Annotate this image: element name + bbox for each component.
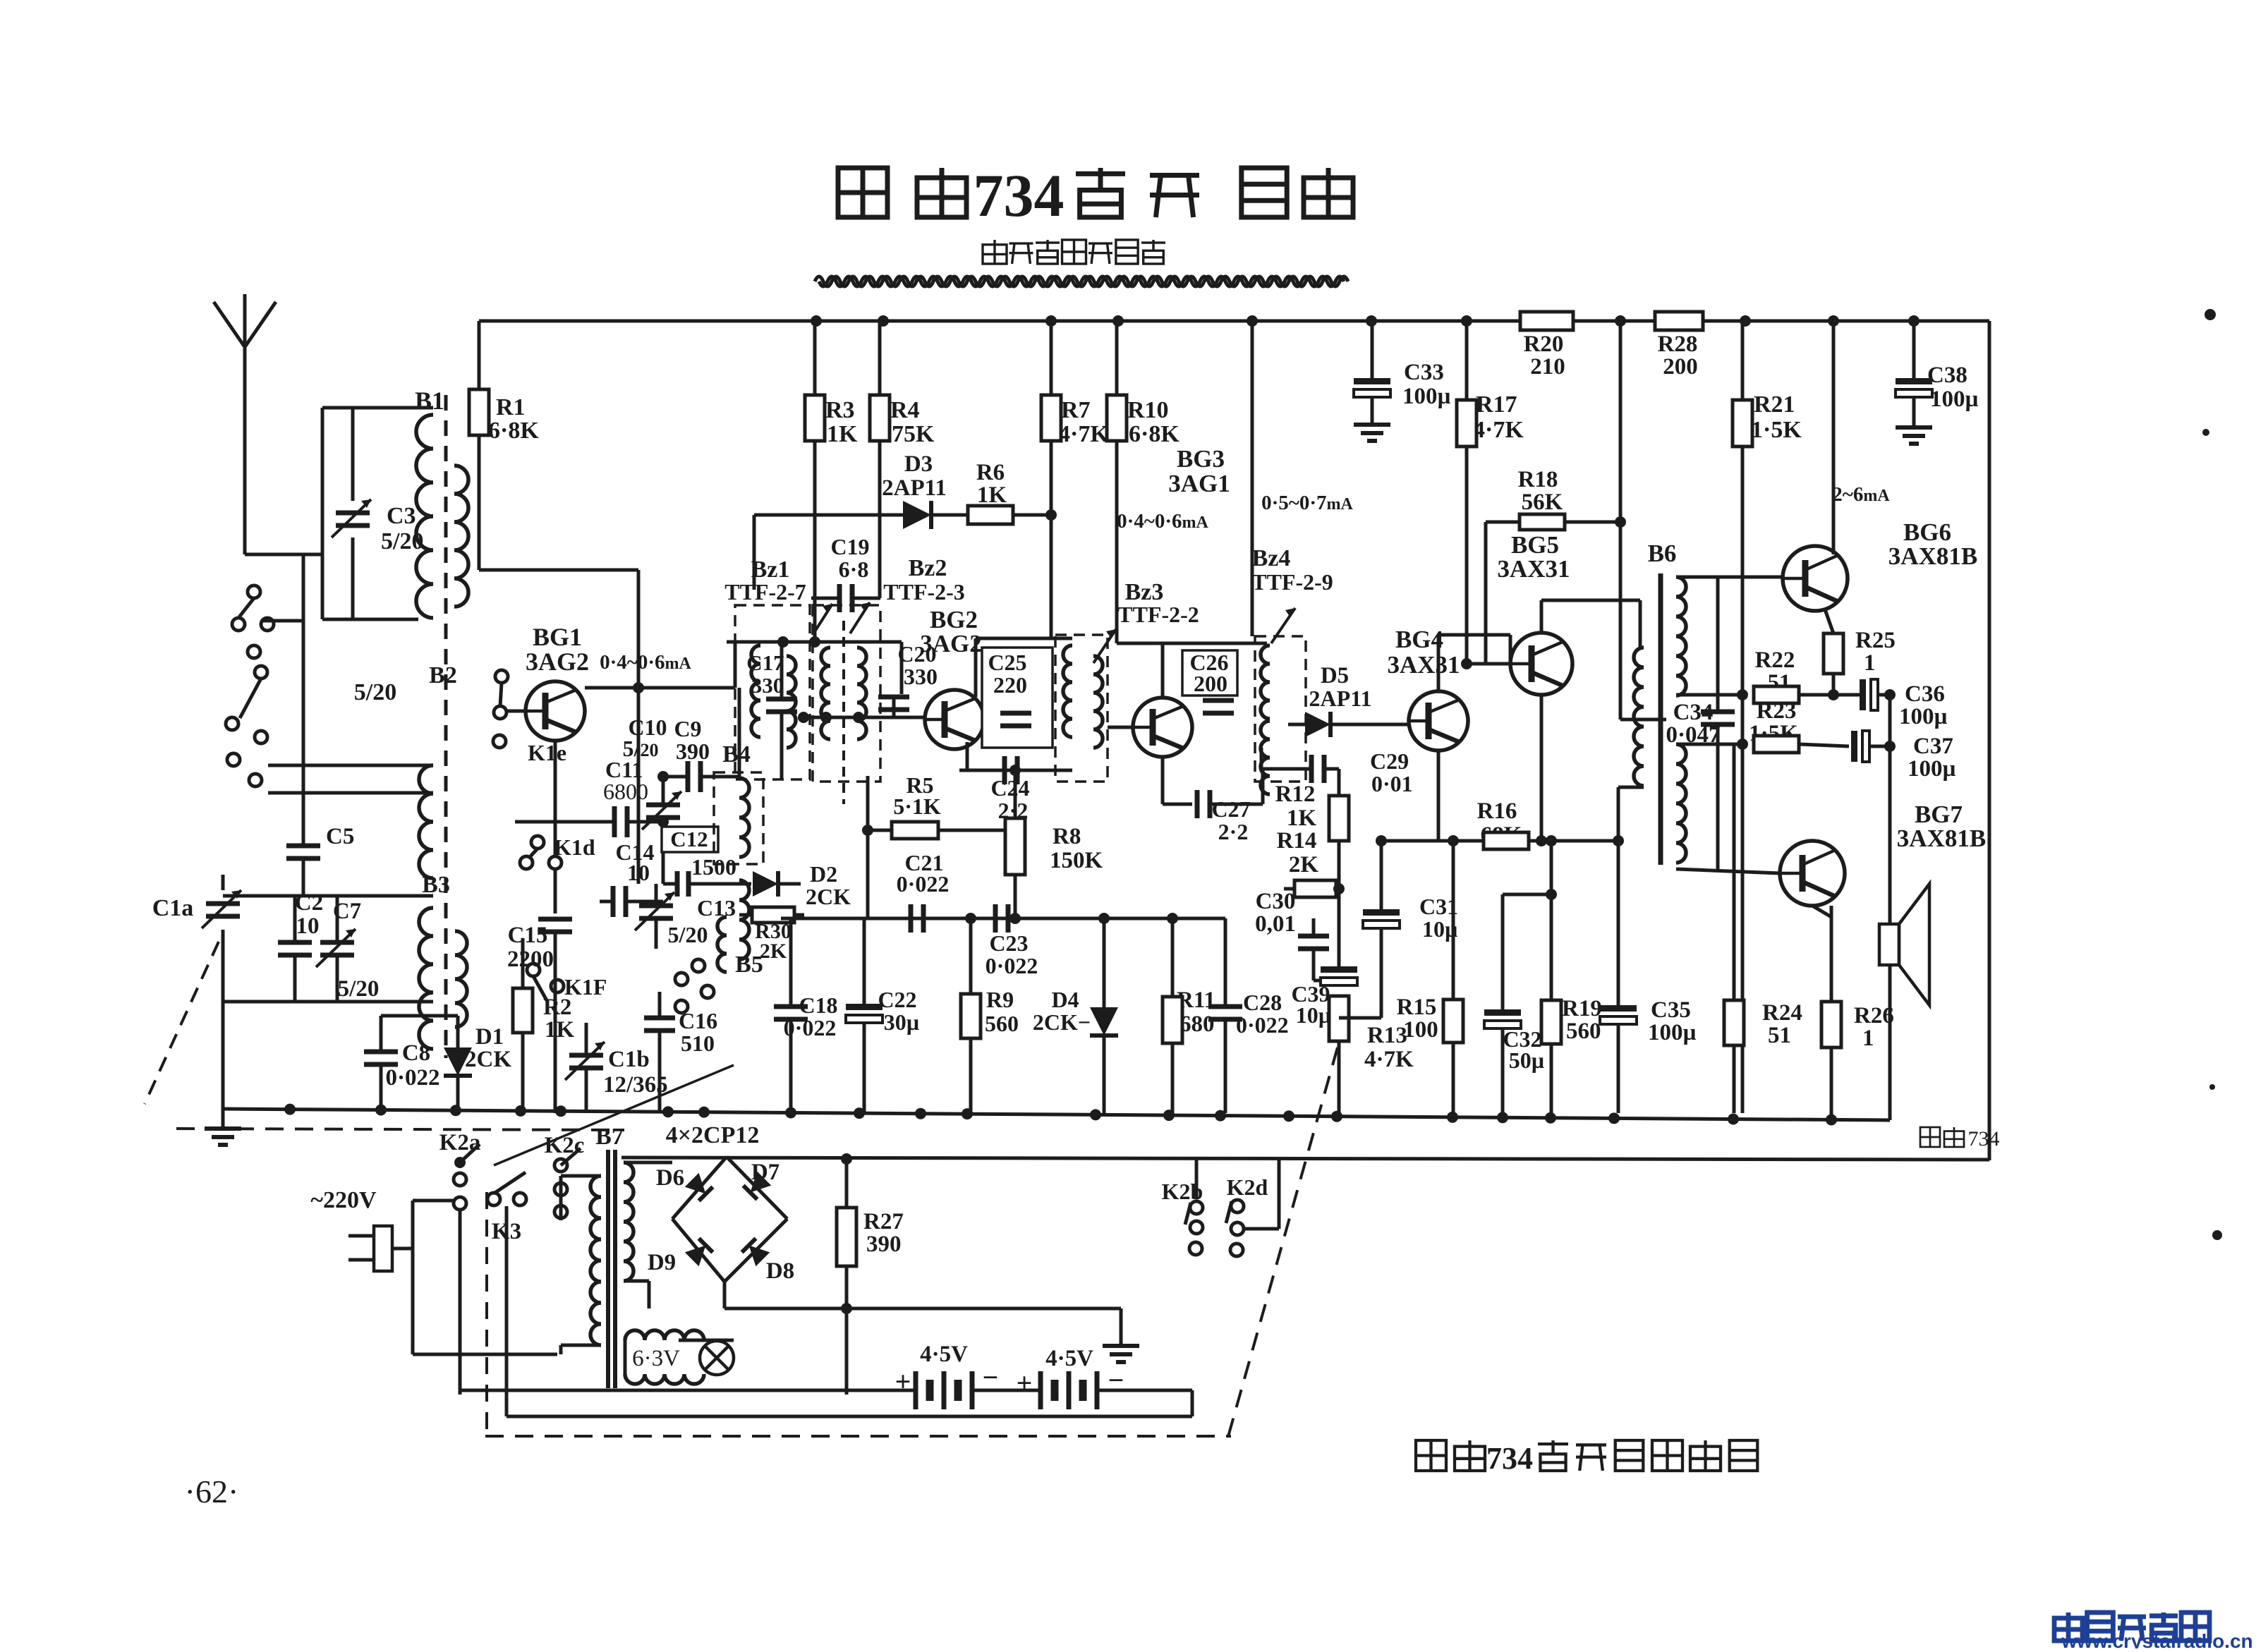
svg-text:B6: B6 bbox=[1648, 540, 1677, 567]
svg-text:3AX81B: 3AX81B bbox=[1888, 542, 1977, 570]
svg-text:220: 220 bbox=[993, 672, 1027, 698]
svg-text:10: 10 bbox=[296, 913, 320, 939]
svg-text:+: + bbox=[895, 1366, 911, 1397]
svg-text:5/20: 5/20 bbox=[668, 922, 708, 947]
svg-text:75K: 75K bbox=[892, 421, 935, 447]
svg-text:R9: R9 bbox=[986, 987, 1014, 1012]
svg-text:C29: C29 bbox=[1370, 748, 1409, 774]
svg-text:0·022: 0·022 bbox=[385, 1065, 439, 1091]
svg-text:C23: C23 bbox=[989, 930, 1028, 956]
svg-text:2CK: 2CK bbox=[806, 884, 851, 909]
svg-text:B1: B1 bbox=[415, 387, 444, 415]
svg-text:R6: R6 bbox=[976, 460, 1005, 485]
svg-text:5·1K: 5·1K bbox=[893, 794, 941, 819]
svg-text:R22: R22 bbox=[1755, 648, 1795, 673]
svg-text:R25: R25 bbox=[1855, 628, 1896, 653]
svg-text:330: 330 bbox=[751, 673, 784, 698]
svg-text:R23: R23 bbox=[1757, 698, 1797, 724]
svg-text:1K: 1K bbox=[545, 1017, 575, 1043]
svg-text:C19: C19 bbox=[830, 534, 869, 559]
svg-text:K2a: K2a bbox=[439, 1130, 481, 1155]
svg-text:C27: C27 bbox=[1211, 796, 1250, 822]
svg-text:R15: R15 bbox=[1397, 995, 1437, 1020]
svg-text:0·022: 0·022 bbox=[1236, 1012, 1289, 1038]
svg-text:R10: R10 bbox=[1127, 397, 1169, 423]
svg-text:4·7K: 4·7K bbox=[1473, 417, 1524, 443]
svg-text:1K: 1K bbox=[827, 421, 858, 447]
svg-text:C36: C36 bbox=[1905, 681, 1945, 707]
svg-text:4×2CP12: 4×2CP12 bbox=[666, 1122, 760, 1148]
svg-text:150K: 150K bbox=[1050, 848, 1103, 873]
svg-text:51: 51 bbox=[1768, 1023, 1791, 1048]
svg-text:R20: R20 bbox=[1524, 332, 1564, 357]
svg-text:R26: R26 bbox=[1854, 1003, 1894, 1028]
svg-text:TTF-2-2: TTF-2-2 bbox=[1117, 602, 1199, 627]
svg-text:TTF-2-3: TTF-2-3 bbox=[883, 579, 965, 605]
svg-text:C8: C8 bbox=[402, 1040, 430, 1066]
svg-text:210: 210 bbox=[1530, 354, 1565, 379]
svg-text:0·022: 0·022 bbox=[897, 871, 950, 897]
svg-text:R16: R16 bbox=[1477, 798, 1517, 824]
svg-text:R17: R17 bbox=[1476, 391, 1517, 418]
svg-text:C35: C35 bbox=[1651, 997, 1691, 1023]
svg-text:C12: C12 bbox=[670, 827, 708, 851]
svg-text:5/20: 5/20 bbox=[354, 679, 396, 705]
svg-text:2200: 2200 bbox=[507, 947, 554, 972]
svg-text:4·5V: 4·5V bbox=[920, 1342, 968, 1367]
svg-text:734: 734 bbox=[974, 162, 1065, 229]
svg-text:C24: C24 bbox=[990, 775, 1029, 801]
svg-text:1500: 1500 bbox=[691, 854, 736, 880]
svg-text:C22: C22 bbox=[878, 987, 916, 1012]
svg-text:BG1: BG1 bbox=[533, 623, 582, 651]
svg-text:2CK−: 2CK− bbox=[1033, 1009, 1091, 1035]
svg-text:3AX81B: 3AX81B bbox=[1897, 825, 1986, 852]
svg-text:K2c: K2c bbox=[545, 1133, 585, 1158]
svg-text:0·4~0·6mA: 0·4~0·6mA bbox=[1117, 510, 1208, 533]
svg-text:www.crystalradio.cn: www.crystalradio.cn bbox=[2061, 1630, 2252, 1648]
svg-text:2AP11: 2AP11 bbox=[882, 475, 947, 501]
svg-text:R14: R14 bbox=[1277, 828, 1317, 854]
svg-text:C30: C30 bbox=[1256, 889, 1296, 914]
svg-text:10: 10 bbox=[627, 860, 650, 885]
svg-text:Bz4: Bz4 bbox=[1252, 545, 1291, 571]
svg-text:R27: R27 bbox=[863, 1209, 904, 1234]
svg-text:3AG2: 3AG2 bbox=[526, 648, 589, 676]
svg-text:C9: C9 bbox=[674, 716, 701, 741]
svg-text:D5: D5 bbox=[1321, 663, 1349, 688]
svg-text:B2: B2 bbox=[429, 662, 457, 688]
svg-text:D7: D7 bbox=[751, 1160, 780, 1185]
svg-text:D3: D3 bbox=[904, 451, 933, 477]
svg-text:C1a: C1a bbox=[152, 895, 194, 921]
svg-text:B3: B3 bbox=[422, 872, 450, 898]
svg-text:BG3: BG3 bbox=[1177, 445, 1225, 473]
svg-text:2K: 2K bbox=[1289, 852, 1319, 877]
svg-text:R24: R24 bbox=[1762, 1000, 1802, 1026]
svg-text:50µ: 50µ bbox=[1509, 1047, 1544, 1073]
svg-text:4·5V: 4·5V bbox=[1045, 1346, 1093, 1371]
svg-text:K1d: K1d bbox=[554, 834, 595, 860]
svg-text:2CK: 2CK bbox=[465, 1047, 511, 1072]
svg-text:R28: R28 bbox=[1658, 332, 1698, 357]
svg-text:1: 1 bbox=[1864, 650, 1876, 676]
svg-text:3AG2: 3AG2 bbox=[920, 630, 982, 657]
svg-text:D1: D1 bbox=[475, 1024, 504, 1050]
svg-text:1: 1 bbox=[1862, 1026, 1874, 1051]
svg-text:+: + bbox=[1017, 1367, 1033, 1399]
svg-text:2~6mA: 2~6mA bbox=[1832, 483, 1890, 506]
svg-text:10µ: 10µ bbox=[1296, 1002, 1331, 1028]
svg-text:6·8K: 6·8K bbox=[1129, 421, 1180, 447]
svg-text:0·022: 0·022 bbox=[986, 953, 1038, 978]
svg-text:B4: B4 bbox=[722, 741, 751, 767]
svg-text:C1b: C1b bbox=[608, 1047, 650, 1072]
svg-text:C3: C3 bbox=[387, 503, 416, 529]
svg-text:56K: 56K bbox=[1522, 490, 1563, 515]
svg-text:·62·: ·62· bbox=[185, 1474, 239, 1510]
svg-text:734: 734 bbox=[1968, 1127, 2000, 1150]
svg-text:D6: D6 bbox=[656, 1165, 684, 1191]
svg-text:~220V: ~220V bbox=[310, 1187, 377, 1213]
svg-text:C38: C38 bbox=[1927, 363, 1967, 388]
svg-text:R13: R13 bbox=[1367, 1023, 1407, 1048]
svg-text:C33: C33 bbox=[1404, 360, 1444, 385]
svg-text:4·7K: 4·7K bbox=[1364, 1047, 1414, 1072]
svg-text:6·3V: 6·3V bbox=[632, 1346, 680, 1371]
svg-text:D8: D8 bbox=[766, 1258, 794, 1284]
svg-text:6·8: 6·8 bbox=[839, 557, 869, 582]
svg-text:K1F: K1F bbox=[564, 974, 607, 1000]
svg-text:3AG1: 3AG1 bbox=[1168, 470, 1230, 497]
svg-text:2AP11: 2AP11 bbox=[1309, 686, 1372, 711]
svg-text:6800: 6800 bbox=[603, 779, 648, 804]
svg-text:C17: C17 bbox=[746, 650, 784, 675]
svg-text:200: 200 bbox=[1194, 671, 1227, 696]
svg-text:C5: C5 bbox=[326, 824, 354, 849]
svg-text:1K: 1K bbox=[1287, 806, 1317, 831]
svg-text:2K: 2K bbox=[760, 940, 787, 963]
svg-text:C15: C15 bbox=[508, 923, 548, 948]
svg-text:R4: R4 bbox=[890, 397, 920, 423]
svg-text:D4: D4 bbox=[1051, 987, 1079, 1012]
svg-text:R8: R8 bbox=[1053, 824, 1081, 849]
svg-text:0·5~0·7mA: 0·5~0·7mA bbox=[1261, 492, 1353, 514]
svg-text:2·2: 2·2 bbox=[1218, 819, 1249, 844]
svg-text:5/20: 5/20 bbox=[338, 976, 380, 1002]
svg-text:C13: C13 bbox=[697, 895, 736, 921]
svg-text:560: 560 bbox=[985, 1011, 1019, 1036]
svg-text:0·4~0·6mA: 0·4~0·6mA bbox=[600, 651, 691, 674]
svg-text:3AX31: 3AX31 bbox=[1497, 555, 1570, 583]
svg-text:TTF-2-7: TTF-2-7 bbox=[724, 579, 806, 605]
svg-text:R21: R21 bbox=[1754, 391, 1795, 418]
svg-text:330: 330 bbox=[904, 664, 938, 689]
svg-text:1·5K: 1·5K bbox=[1751, 417, 1802, 443]
svg-text:100µ: 100µ bbox=[1899, 704, 1948, 729]
svg-text:R12: R12 bbox=[1275, 782, 1316, 807]
svg-text:560: 560 bbox=[1566, 1019, 1601, 1044]
svg-text:BG4: BG4 bbox=[1395, 626, 1443, 653]
svg-text:100: 100 bbox=[1403, 1017, 1438, 1043]
svg-text:R18: R18 bbox=[1518, 467, 1558, 492]
svg-text:TTF-2-9: TTF-2-9 bbox=[1251, 569, 1333, 595]
svg-text:100µ: 100µ bbox=[1648, 1020, 1697, 1045]
svg-text:100µ: 100µ bbox=[1908, 756, 1956, 782]
svg-text:0,01: 0,01 bbox=[1255, 911, 1296, 937]
svg-text:734: 734 bbox=[1486, 1441, 1533, 1476]
svg-text:C28: C28 bbox=[1243, 990, 1282, 1015]
svg-text:−: − bbox=[983, 1361, 999, 1393]
svg-text:C16: C16 bbox=[679, 1008, 717, 1033]
svg-text:C25: C25 bbox=[988, 650, 1026, 675]
svg-text:200: 200 bbox=[1663, 354, 1698, 379]
svg-text:C37: C37 bbox=[1913, 734, 1953, 759]
svg-text:K1e: K1e bbox=[528, 740, 566, 765]
svg-text:R19: R19 bbox=[1562, 996, 1602, 1021]
svg-text:680: 680 bbox=[1180, 1012, 1215, 1037]
svg-text:6·8K: 6·8K bbox=[488, 418, 539, 444]
svg-text:3AX31: 3AX31 bbox=[1387, 651, 1460, 679]
svg-text:R3: R3 bbox=[825, 397, 855, 423]
svg-text:K2d: K2d bbox=[1227, 1174, 1268, 1200]
svg-text:4·7K: 4·7K bbox=[1058, 421, 1109, 447]
svg-text:0·01: 0·01 bbox=[1371, 771, 1413, 796]
svg-text:C2: C2 bbox=[295, 890, 323, 916]
svg-text:D2: D2 bbox=[810, 861, 837, 887]
svg-text:100µ: 100µ bbox=[1402, 384, 1451, 409]
svg-text:30µ: 30µ bbox=[884, 1009, 919, 1035]
svg-text:D9: D9 bbox=[648, 1250, 676, 1275]
svg-text:390: 390 bbox=[866, 1232, 902, 1257]
svg-text:Bz2: Bz2 bbox=[909, 555, 947, 581]
svg-text:510: 510 bbox=[681, 1031, 715, 1056]
svg-text:R7: R7 bbox=[1061, 397, 1091, 423]
svg-text:390: 390 bbox=[676, 739, 710, 764]
svg-text:B7: B7 bbox=[595, 1124, 624, 1150]
svg-text:R1: R1 bbox=[496, 394, 526, 420]
svg-text:100µ: 100µ bbox=[1930, 387, 1979, 412]
